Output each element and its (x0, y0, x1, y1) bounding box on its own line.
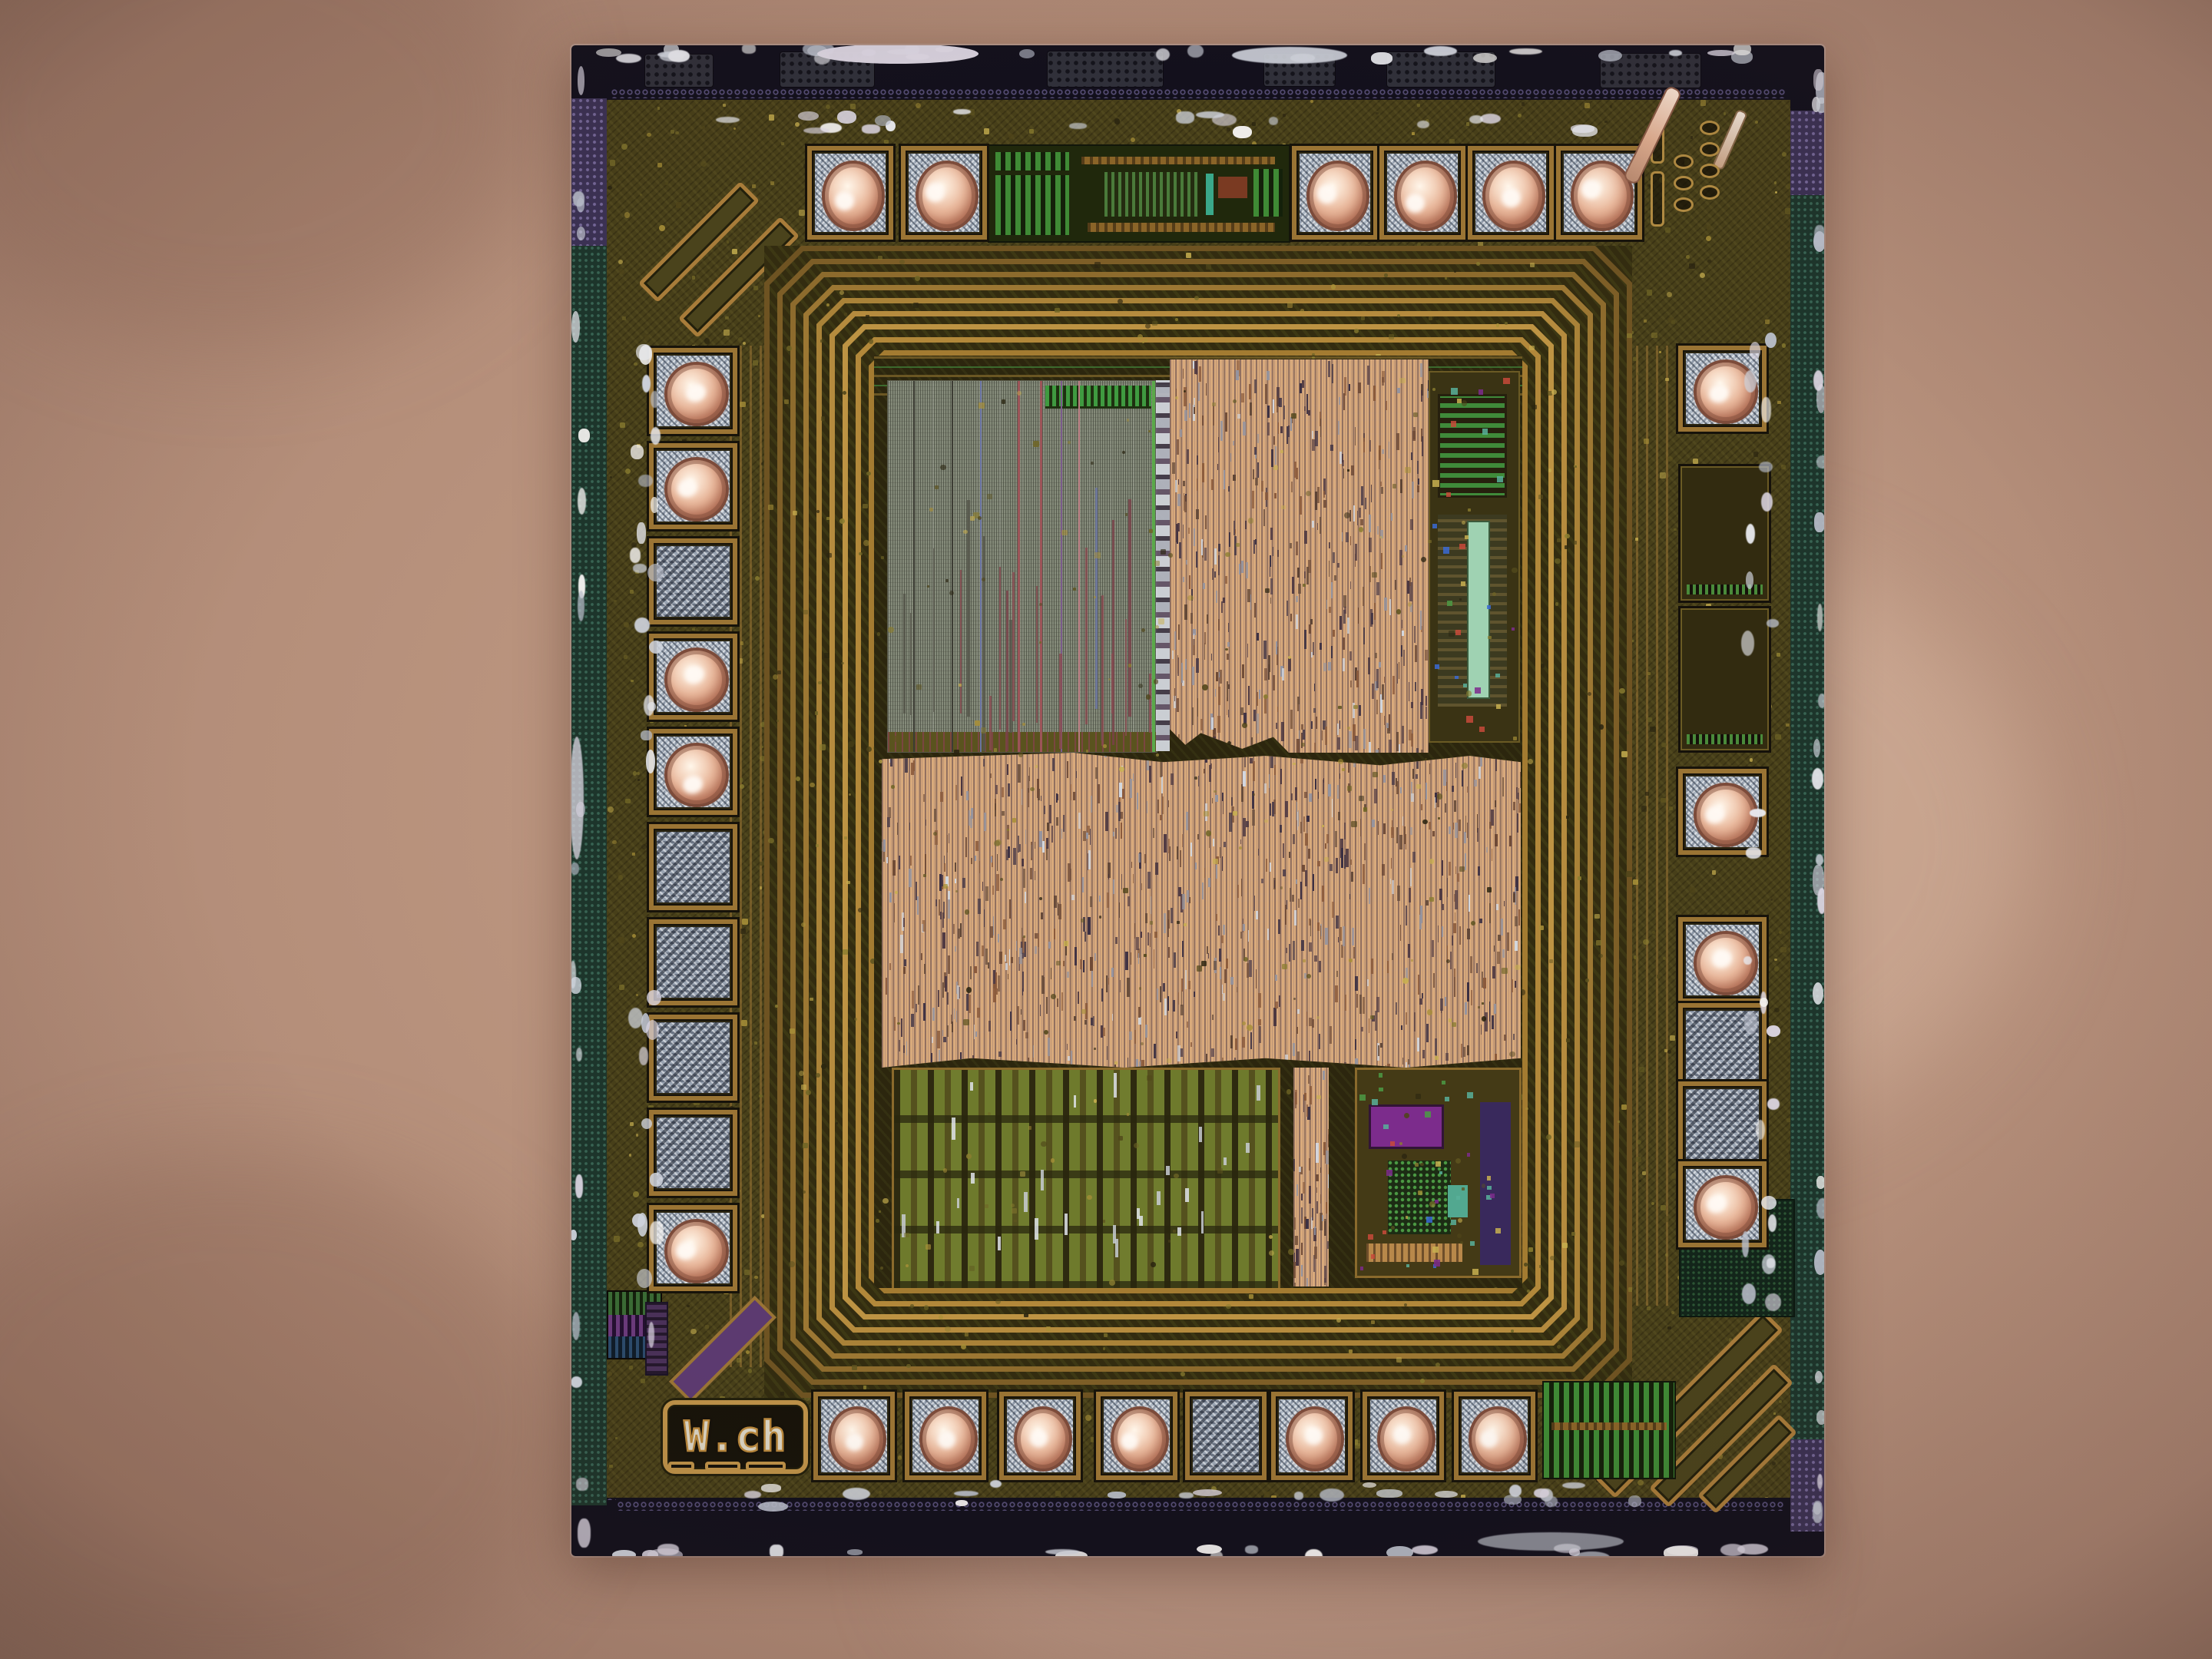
copper-ball-bond (664, 362, 729, 426)
pad-opening (1686, 1169, 1759, 1240)
bond-pad-with-ball (649, 729, 737, 815)
ball-highlight (674, 1239, 698, 1262)
ball-highlight (1118, 1430, 1141, 1453)
logo-dash (668, 1462, 694, 1471)
copper-ball-bond (1694, 931, 1758, 995)
silicon-die: W.ch (571, 45, 1824, 1556)
copper-ball-bond (828, 1406, 887, 1472)
pad-opening (657, 737, 730, 807)
bond-pad-with-ball (901, 146, 987, 240)
pad-opening (1686, 777, 1759, 847)
logo-dash (705, 1462, 740, 1471)
copper-ball-bond (1111, 1406, 1170, 1472)
ball-highlight (923, 180, 948, 204)
bond-pad-with-ball (1678, 769, 1767, 855)
bond-pad-with-ball (1271, 1392, 1353, 1480)
logo-dash (746, 1462, 786, 1471)
bond-pad-with-ball (807, 146, 893, 240)
pad-opening (657, 356, 730, 426)
bond-pad-with-ball (649, 634, 737, 720)
copper-ball-bond (1286, 1406, 1345, 1472)
bond-pad-with-ball (1454, 1392, 1535, 1480)
wch-logo-text: W.ch (684, 1416, 786, 1458)
copper-ball-bond (1694, 783, 1758, 846)
pad-opening (1686, 1011, 1759, 1081)
ball-highlight (843, 1431, 866, 1454)
copper-ball-bond (664, 647, 729, 711)
pad-opening (1007, 1399, 1073, 1472)
bond-pad-bare (1678, 1081, 1767, 1167)
bond-pad-with-ball (905, 1392, 986, 1480)
ball-highlight (1477, 1427, 1500, 1450)
ball-highlight (1403, 190, 1428, 215)
copper-ball-bond (1694, 1175, 1758, 1239)
pad-opening (1279, 1399, 1345, 1472)
bond-pad-bare (649, 1015, 737, 1101)
ball-highlight (684, 382, 708, 405)
bond-pad-with-ball (1556, 146, 1642, 240)
ball-highlight (1391, 1423, 1414, 1446)
pad-opening (1475, 154, 1546, 232)
ball-highlight (675, 476, 700, 499)
ball-highlight (1498, 186, 1523, 210)
die-photo: W.ch (0, 0, 2212, 1659)
bond-wire-tail (1622, 84, 1682, 185)
copper-ball-bond (1306, 161, 1369, 231)
ball-highlight (682, 664, 707, 687)
pad-opening (657, 451, 730, 522)
bond-pad-with-ball (999, 1392, 1081, 1480)
pad-opening (657, 1022, 730, 1093)
bond-pad-bare (649, 824, 737, 910)
ball-highlight (1704, 1192, 1729, 1215)
bond-pad-with-ball (649, 1205, 737, 1291)
bond-pad-bare (1678, 1003, 1767, 1089)
ball-highlight (1703, 803, 1727, 826)
copper-ball-bond (919, 1406, 979, 1472)
bond-pad-with-ball (1363, 1392, 1444, 1480)
pad-opening (1686, 1089, 1759, 1160)
pad-opening (912, 1399, 979, 1472)
pad-opening (1370, 1399, 1436, 1472)
copper-ball-bond (822, 161, 885, 231)
ball-highlight (680, 773, 705, 796)
bond-pad-bare (649, 1110, 737, 1196)
pad-opening (1104, 1399, 1170, 1472)
bond-pad-bare (649, 919, 737, 1005)
bond-pad-with-ball (1678, 917, 1767, 1003)
bond-pad-with-ball (1678, 346, 1767, 432)
pad-opening (657, 641, 730, 712)
bond-pad-with-ball (813, 1392, 895, 1480)
pad-opening (909, 154, 979, 232)
pad-opening (657, 927, 730, 998)
bond-pad-with-ball (1096, 1392, 1177, 1480)
pad-opening (1564, 154, 1634, 232)
copper-ball-bond (1571, 161, 1634, 231)
copper-ball-bond (664, 743, 729, 806)
ball-highlight (1709, 947, 1734, 970)
pad-opening (657, 1213, 730, 1283)
pad-opening (1686, 925, 1759, 995)
bond-pad-with-ball (1292, 146, 1378, 240)
pad-opening (1300, 154, 1370, 232)
bond-pad-with-ball (1379, 146, 1465, 240)
bond-pad-bare (1185, 1392, 1267, 1480)
copper-ball-bond (1694, 359, 1758, 423)
copper-ball-bond (1469, 1406, 1528, 1472)
copper-ball-bond (1377, 1406, 1436, 1472)
bond-pad-with-ball (1468, 146, 1554, 240)
ball-highlight (1027, 1427, 1050, 1450)
bond-pad-with-ball (1678, 1161, 1767, 1247)
ball-highlight (1303, 1425, 1326, 1448)
copper-ball-bond (1482, 161, 1545, 231)
pad-opening (815, 154, 886, 232)
ball-highlight (935, 1429, 959, 1452)
ball-highlight (1578, 177, 1603, 202)
pad-opening (657, 832, 730, 902)
copper-ball-bond (664, 457, 729, 521)
pad-opening (657, 1118, 730, 1188)
bond-pad-bare (649, 538, 737, 624)
copper-ball-bond (916, 161, 979, 231)
bond-pad-with-ball (649, 443, 737, 529)
ball-highlight (1706, 382, 1730, 405)
ball-highlight (1315, 181, 1339, 206)
bond-pad-with-ball (649, 348, 737, 434)
pad-opening (1387, 154, 1458, 232)
pad-opening (657, 546, 730, 617)
copper-ball-bond (664, 1219, 729, 1283)
bond-pad-layer (571, 45, 1824, 1556)
pad-opening (1686, 353, 1759, 424)
copper-ball-bond (1394, 161, 1457, 231)
pad-opening (1193, 1399, 1259, 1472)
pad-opening (1462, 1399, 1528, 1472)
ball-highlight (832, 188, 856, 213)
copper-ball-bond (1014, 1406, 1073, 1472)
pad-opening (821, 1399, 887, 1472)
